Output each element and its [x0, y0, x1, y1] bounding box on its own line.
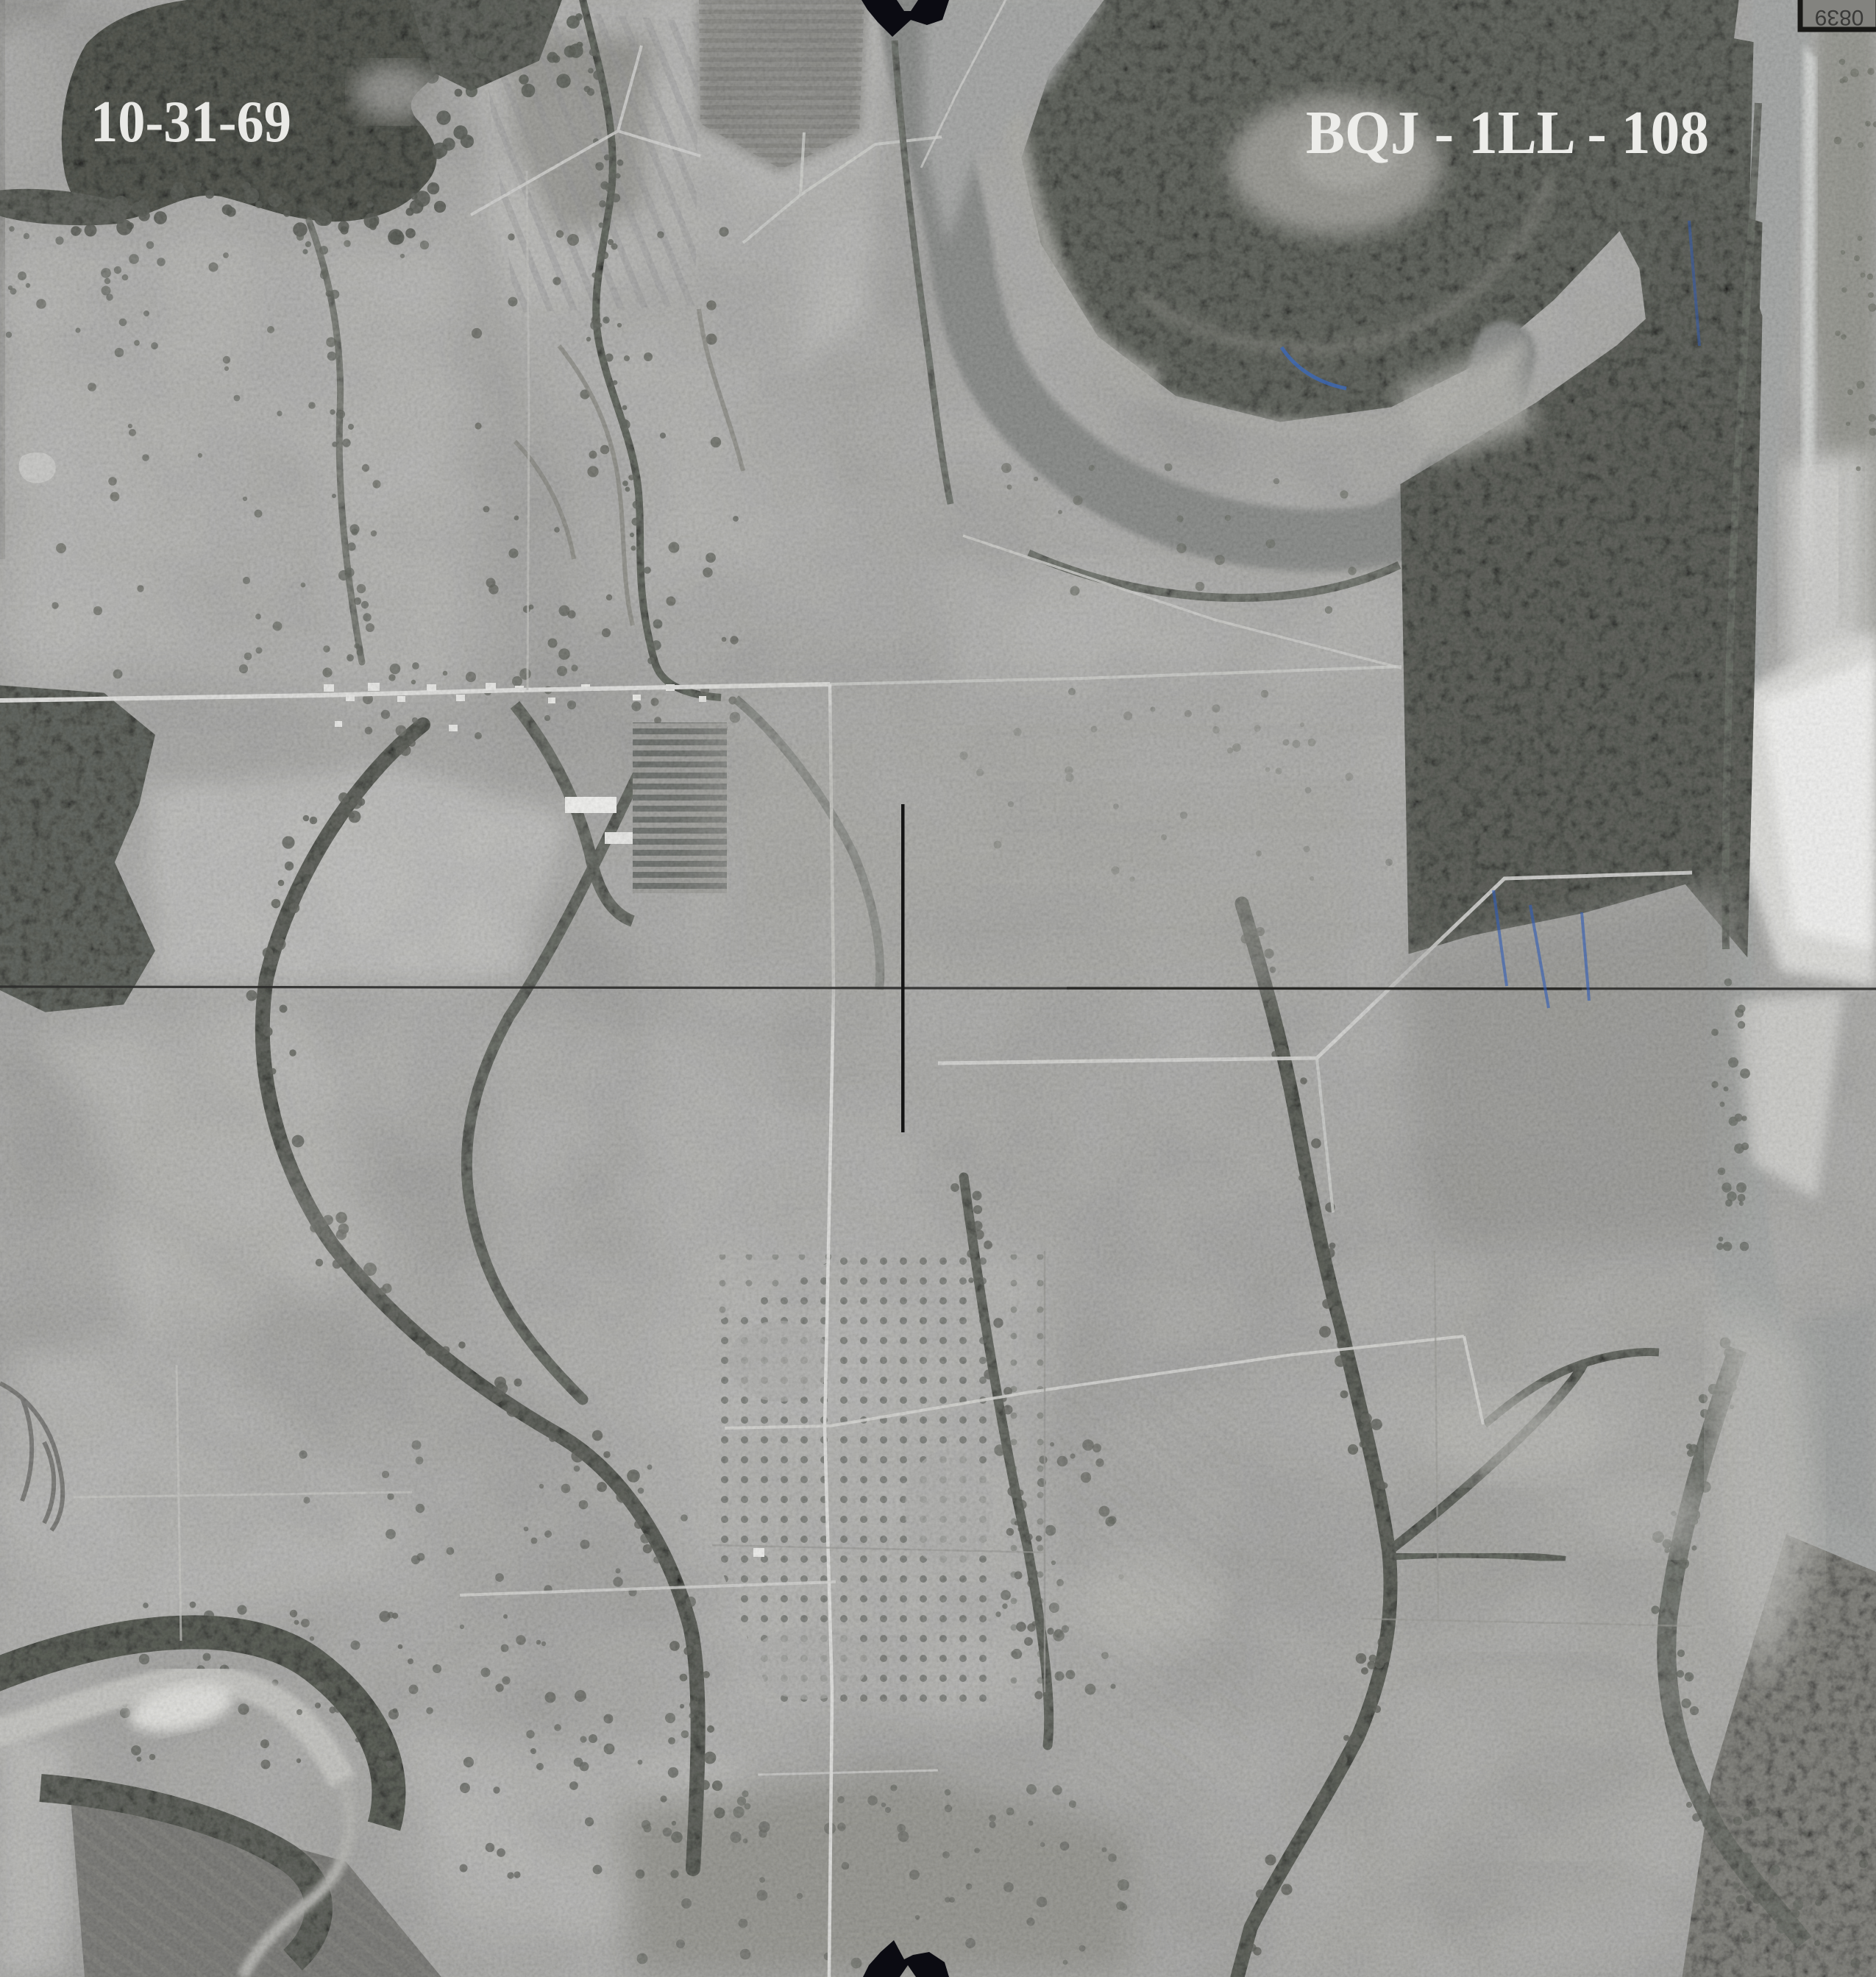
svg-text:BQJ - 1LL - 108: BQJ - 1LL - 108: [1306, 99, 1709, 167]
svg-text:10-31-69: 10-31-69: [90, 90, 291, 155]
svg-text:0839: 0839: [1815, 5, 1864, 29]
